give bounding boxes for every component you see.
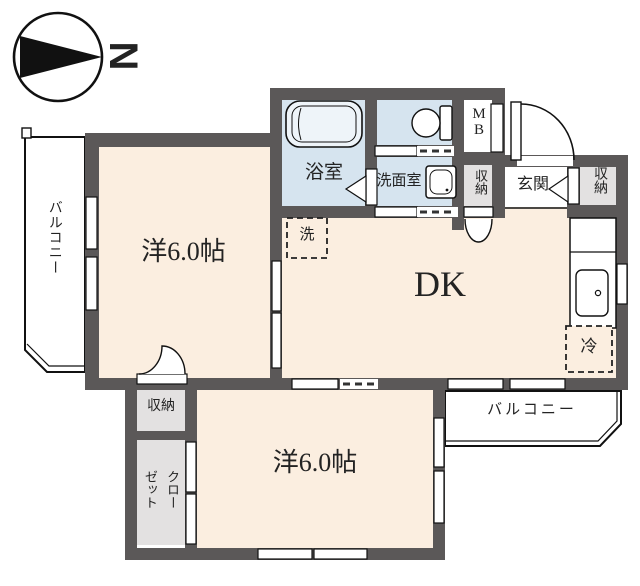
toilet-icon [412,106,452,140]
closet-door-panel [186,442,196,492]
bottom-window-1 [258,549,312,559]
dk-label: DK [385,264,495,305]
floorplan-drawing [0,0,640,586]
compass-north-label: N [98,32,146,80]
closet-door-panel [186,494,196,544]
window-left-1 [86,197,97,249]
balcony-left-label: バルコニー [43,200,65,275]
washroom-door [375,207,417,217]
bathroom-label: 浴室 [282,162,366,184]
dk-window-2 [510,379,565,389]
bathtub-icon [286,101,362,147]
washer-label: 洗 [287,227,327,244]
dk-window-1 [448,379,503,389]
balcony-bottom-label: バルコニー [457,402,607,419]
meter-box-label: MB [468,106,490,138]
floorplan: N バルコニー 洋6.0帖 浴室 洗面室 玄関 MB 収納 収納 DK 洗 冷 … [0,0,640,586]
bottom-window-2 [314,549,367,559]
toilet-door [375,146,417,156]
washbasin-icon [426,166,456,198]
room-bottom-label: 洋6.0帖 [197,448,433,478]
kitchen-counter-icon [570,218,616,328]
storage-bottom-label: 収納 [137,399,185,415]
room-sliding-door [292,379,338,389]
storage-bifold-bar [137,374,187,384]
storage-door-bar [464,207,493,217]
window-left-2 [86,257,97,310]
mb-door [491,104,503,152]
kitchen-window [617,264,627,304]
entrance-label: 玄関 [504,176,562,194]
compass-icon [14,13,102,101]
closet-label: クローゼット [139,464,183,514]
sliding-door-panel [272,313,281,368]
storage-left-label: 収納 [466,169,490,195]
washroom-label: 洗面室 [371,173,427,190]
right-window-1 [434,418,444,467]
entrance-door [511,102,574,166]
room-top-label: 洋6.0帖 [97,237,270,267]
right-window-2 [434,471,444,523]
sliding-door-panel [272,261,281,311]
storage-right-label: 収納 [586,166,610,194]
fridge-label: 冷 [566,337,612,357]
